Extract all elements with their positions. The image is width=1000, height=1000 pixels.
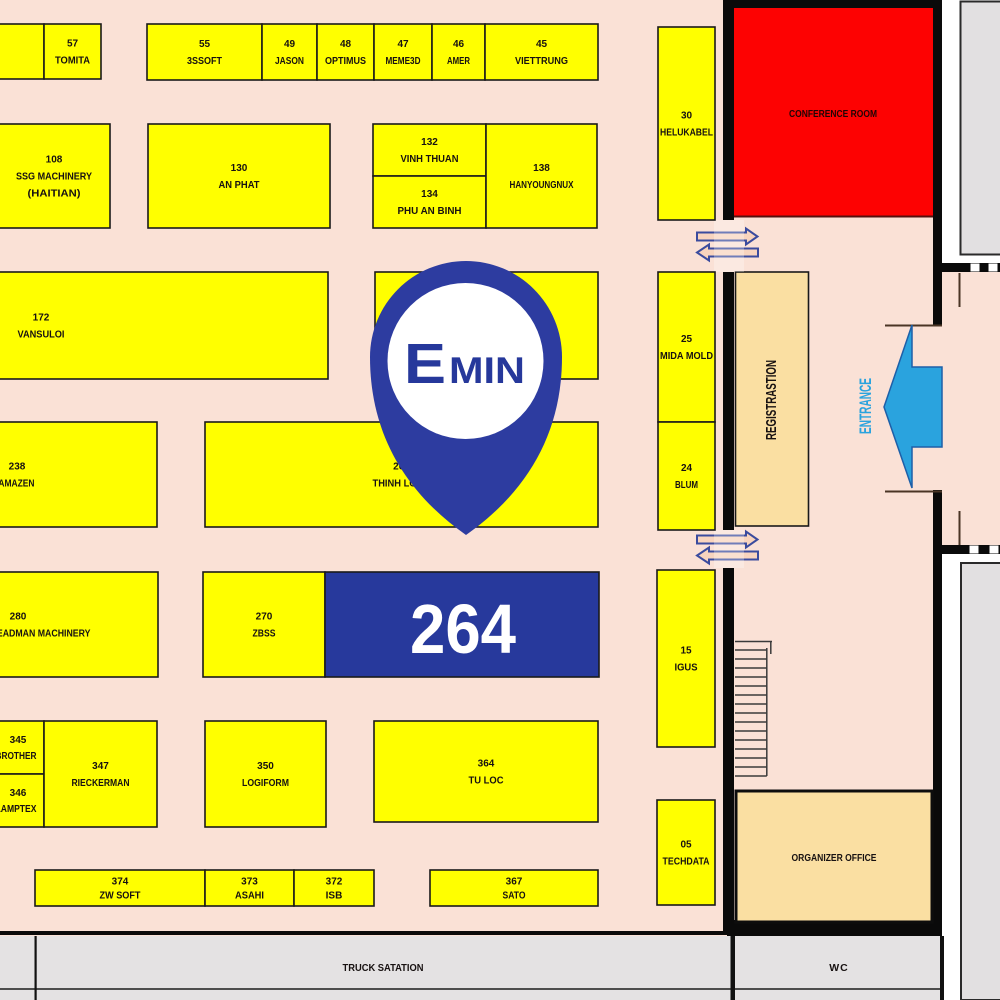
svg-text:VANSULOI: VANSULOI <box>18 330 65 341</box>
svg-text:ENTRANCE: ENTRANCE <box>857 378 875 434</box>
svg-text:MIN: MIN <box>449 349 525 391</box>
svg-text:05: 05 <box>680 840 692 851</box>
svg-text:130: 130 <box>231 163 248 174</box>
svg-text:24: 24 <box>681 463 693 474</box>
svg-text:3SSOFT: 3SSOFT <box>187 56 222 67</box>
svg-text:VIETTRUNG: VIETTRUNG <box>515 56 568 67</box>
svg-text:TECHDATA: TECHDATA <box>663 857 710 868</box>
svg-text:MIDA MOLD: MIDA MOLD <box>660 351 713 362</box>
svg-text:SSG MACHINERY: SSG MACHINERY <box>16 172 92 183</box>
svg-text:347: 347 <box>92 761 109 772</box>
svg-text:E: E <box>404 332 446 396</box>
svg-text:LAMPTEX: LAMPTEX <box>0 804 37 815</box>
svg-text:RIECKERMAN: RIECKERMAN <box>72 778 130 789</box>
svg-text:373: 373 <box>241 877 258 888</box>
svg-text:YAMAZEN: YAMAZEN <box>0 479 35 490</box>
svg-text:238: 238 <box>9 462 26 473</box>
svg-text:280: 280 <box>10 612 27 623</box>
svg-text:49: 49 <box>284 39 296 50</box>
svg-text:ORGANIZER OFFICE: ORGANIZER OFFICE <box>792 852 877 864</box>
svg-text:OPTIMUS: OPTIMUS <box>325 56 366 67</box>
svg-text:BLUM: BLUM <box>675 480 698 491</box>
svg-text:345: 345 <box>10 735 27 746</box>
svg-text:TU LOC: TU LOC <box>469 776 504 787</box>
svg-text:CONFERENCE ROOM: CONFERENCE ROOM <box>789 108 877 120</box>
svg-text:25: 25 <box>681 334 693 345</box>
svg-text:TRUCK SATATION: TRUCK SATATION <box>343 962 424 974</box>
svg-text:138: 138 <box>533 163 550 174</box>
svg-text:AN PHAT: AN PHAT <box>219 180 260 191</box>
svg-text:HANYOUNGNUX: HANYOUNGNUX <box>510 180 574 191</box>
svg-text:JASON: JASON <box>275 56 304 67</box>
svg-text:ZW SOFT: ZW SOFT <box>100 891 141 902</box>
svg-text:57: 57 <box>67 39 79 50</box>
svg-text:47: 47 <box>397 39 409 50</box>
svg-text:172: 172 <box>33 313 50 324</box>
svg-text:AMER: AMER <box>447 56 471 67</box>
svg-text:WC: WC <box>829 962 849 974</box>
svg-text:LEADMAN MACHINERY: LEADMAN MACHINERY <box>0 629 91 640</box>
svg-text:346: 346 <box>10 788 27 799</box>
svg-text:ZBSS: ZBSS <box>253 629 276 640</box>
svg-text:BROTHER: BROTHER <box>0 751 37 762</box>
svg-text:REGISTRASTION: REGISTRASTION <box>763 360 780 440</box>
svg-text:46: 46 <box>453 39 465 50</box>
svg-text:45: 45 <box>536 39 548 50</box>
svg-text:LOGIFORM: LOGIFORM <box>242 778 289 789</box>
svg-text:(HAITIAN): (HAITIAN) <box>28 189 81 200</box>
svg-text:264: 264 <box>410 590 516 668</box>
svg-text:MEME3D: MEME3D <box>386 56 421 67</box>
svg-text:SATO: SATO <box>503 891 526 902</box>
svg-text:TOMITA: TOMITA <box>55 56 90 67</box>
svg-text:ISB: ISB <box>326 891 343 902</box>
svg-text:132: 132 <box>421 137 438 148</box>
svg-text:ASAHI: ASAHI <box>235 891 264 902</box>
svg-text:15: 15 <box>680 646 692 657</box>
svg-text:PHU AN BINH: PHU AN BINH <box>398 206 462 217</box>
svg-text:364: 364 <box>478 759 495 770</box>
svg-text:372: 372 <box>326 877 343 888</box>
svg-text:108: 108 <box>46 155 63 166</box>
svg-text:HELUKABEL: HELUKABEL <box>660 128 713 139</box>
svg-text:134: 134 <box>421 189 438 200</box>
svg-text:270: 270 <box>256 612 273 623</box>
svg-text:367: 367 <box>506 877 523 888</box>
svg-text:30: 30 <box>681 111 693 122</box>
svg-text:374: 374 <box>112 877 129 888</box>
svg-text:350: 350 <box>257 761 274 772</box>
svg-text:IGUS: IGUS <box>675 663 698 674</box>
svg-text:55: 55 <box>199 39 211 50</box>
svg-text:VINH THUAN: VINH THUAN <box>401 154 459 165</box>
svg-text:48: 48 <box>340 39 352 50</box>
